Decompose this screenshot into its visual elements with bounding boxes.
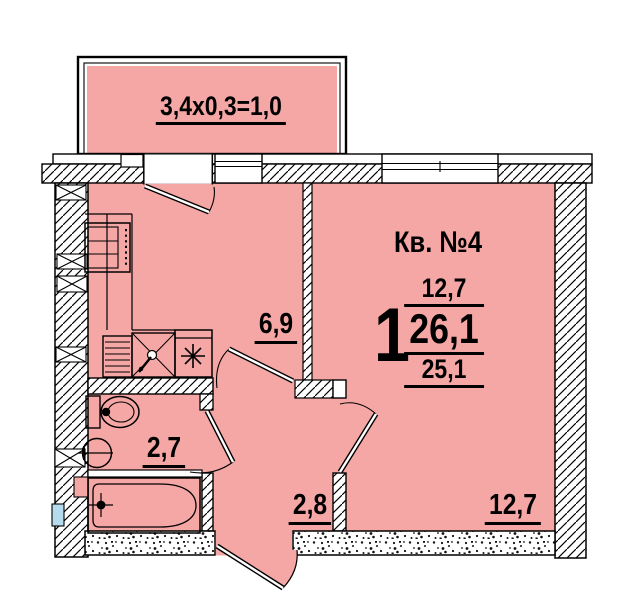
floor-plan-page: 3,4x0,3=1,0 Кв. №4 1 12,7 26,1 25,1 6,9 … (0, 0, 640, 615)
living-room-window (382, 154, 498, 183)
bathroom-area-label: 2,7 (143, 434, 186, 468)
top-wall (42, 153, 592, 185)
apartment-number-label: Кв. №4 (394, 228, 482, 258)
kitchen-window (215, 154, 262, 183)
balcony-area-label: 3,4x0,3=1,0 (156, 93, 286, 125)
hallway-area-label: 2,8 (289, 491, 332, 525)
left-wall (52, 183, 88, 557)
entrance-door (216, 531, 297, 589)
bottom-wall (85, 531, 555, 555)
area-summary: 12,7 26,1 25,1 (404, 274, 484, 388)
living-area-value: 12,7 (404, 274, 484, 307)
kitchen-area-label: 6,9 (255, 310, 298, 344)
small-window-icon (52, 504, 64, 526)
area-no-balcony-value: 25,1 (404, 355, 484, 388)
living-room-area-label: 12,7 (485, 491, 541, 525)
right-wall (555, 183, 586, 558)
total-area-value: 26,1 (404, 307, 484, 355)
